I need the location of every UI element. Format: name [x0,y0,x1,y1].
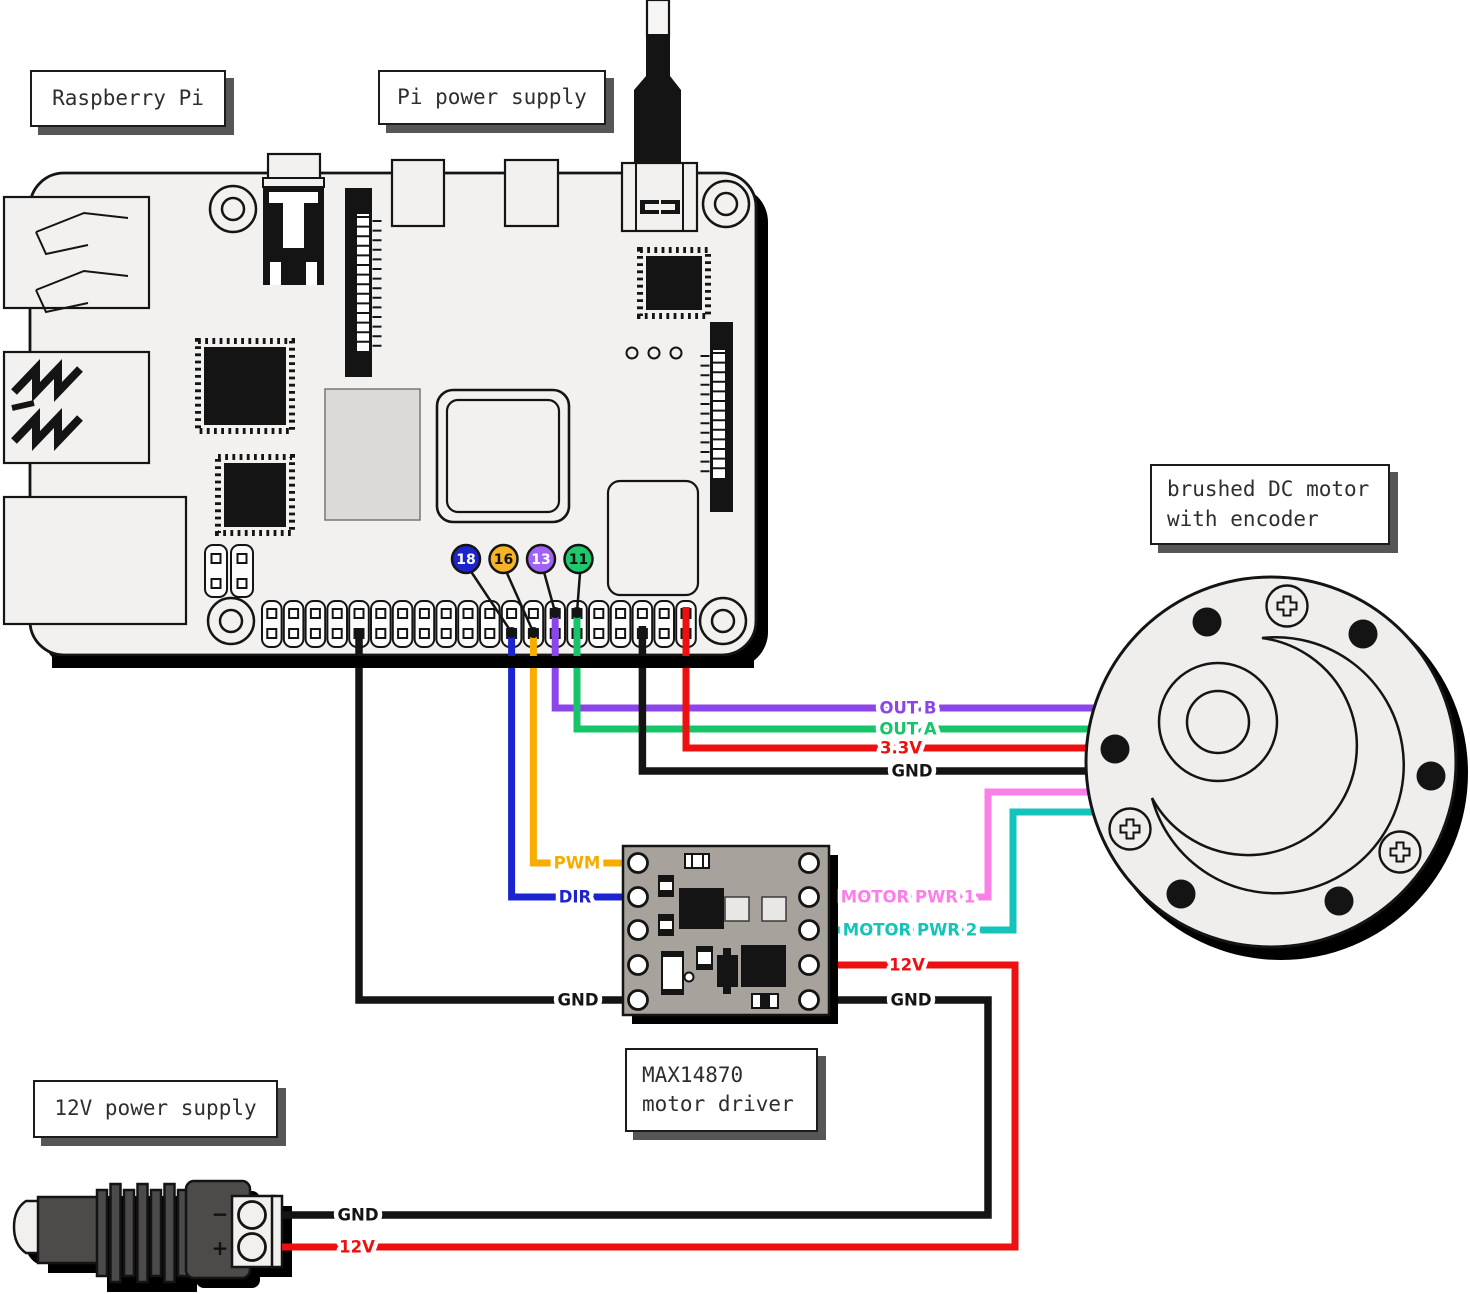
usb-c-power-connector [622,0,697,231]
soc-chip [437,390,569,522]
pin-dot [550,607,561,618]
label-gnd-supply: GND [337,1206,378,1225]
mount-hole [208,598,254,644]
motor-screw [1380,832,1421,873]
label-gnd-driver: GND [890,991,931,1010]
label-motor-pwr-2: MOTOR PWR 2 [843,921,977,940]
mount-hole [703,181,749,227]
chip-a [198,341,292,431]
caption-text: MAX14870 [642,1061,743,1090]
ethernet-port [4,197,149,312]
label-motor-pwr-1: MOTOR PWR 1 [841,888,975,907]
wire-motor-pwr-1 [815,792,1110,897]
usb-port-stack [4,352,149,463]
pi-shadow-strip [52,656,754,668]
pin-label-11: 11 [569,552,588,568]
label-gnd-pi-driver: GND [557,991,598,1010]
caption-motor-driver: MAX14870 motor driver [625,1048,818,1132]
jack-ribs [97,1184,188,1282]
ram-chip [325,389,420,520]
label-12v-driver: 12V [889,956,925,975]
label-out-a: OUT A [879,720,936,739]
chip-b [218,457,292,533]
caption-raspberry-pi: Raspberry Pi [30,70,226,127]
terminal-plus [239,1234,266,1261]
pin-dot [528,627,539,638]
label-12v-supply: 12V [339,1238,375,1257]
caption-text: 12V power supply [54,1094,256,1123]
caption-dc-motor: brushed DC motor with encoder [1150,464,1390,545]
audio-jack [263,154,324,285]
pin-dot [506,627,517,638]
caption-text: brushed DC motor [1167,475,1369,504]
label-dir: DIR [559,888,592,907]
terminal-block-edge [272,1196,282,1267]
caption-text: with encoder [1167,505,1319,534]
terminal-minus [239,1202,266,1229]
motor-screw [1110,809,1151,850]
plus-sign: + [212,1236,229,1260]
caption-pi-power-supply: Pi power supply [378,70,606,125]
mount-hole [210,186,256,232]
wire-motor-pwr-2 [815,812,1115,930]
caption-12v-power-supply: 12V power supply [33,1080,278,1138]
test-pads [627,348,682,359]
motor-driver-board [623,846,838,1024]
usb-port-lower [4,497,186,624]
caption-text: motor driver [642,1090,794,1119]
power-cable [647,0,669,36]
wiring-diagram: − + 18 16 13 11 [0,0,1470,1294]
label-gnd-motor: GND [891,762,932,781]
top-port-1 [392,160,444,226]
label-pwm: PWM [554,854,601,873]
wire-gnd-pi-driver [359,628,632,1000]
pin-label-18: 18 [456,552,475,568]
jack-barrel [38,1197,100,1263]
pin-label-16: 16 [494,552,513,568]
minus-sign: − [212,1202,229,1226]
motor-screw [1267,586,1308,627]
jack-tip [14,1201,40,1253]
label-3v3: 3.3V [880,739,922,758]
chip-top-right [640,250,708,316]
barrel-jack-plug: − + [14,1181,292,1292]
sd-slot [608,481,698,595]
pin-dot [572,607,583,618]
top-port-2 [505,160,558,226]
dc-motor [1086,577,1468,960]
caption-text: Pi power supply [397,83,587,112]
pin-label-13: 13 [531,552,550,568]
mount-hole [700,598,746,644]
caption-text: Raspberry Pi [52,84,204,113]
label-out-b: OUT B [879,699,936,718]
